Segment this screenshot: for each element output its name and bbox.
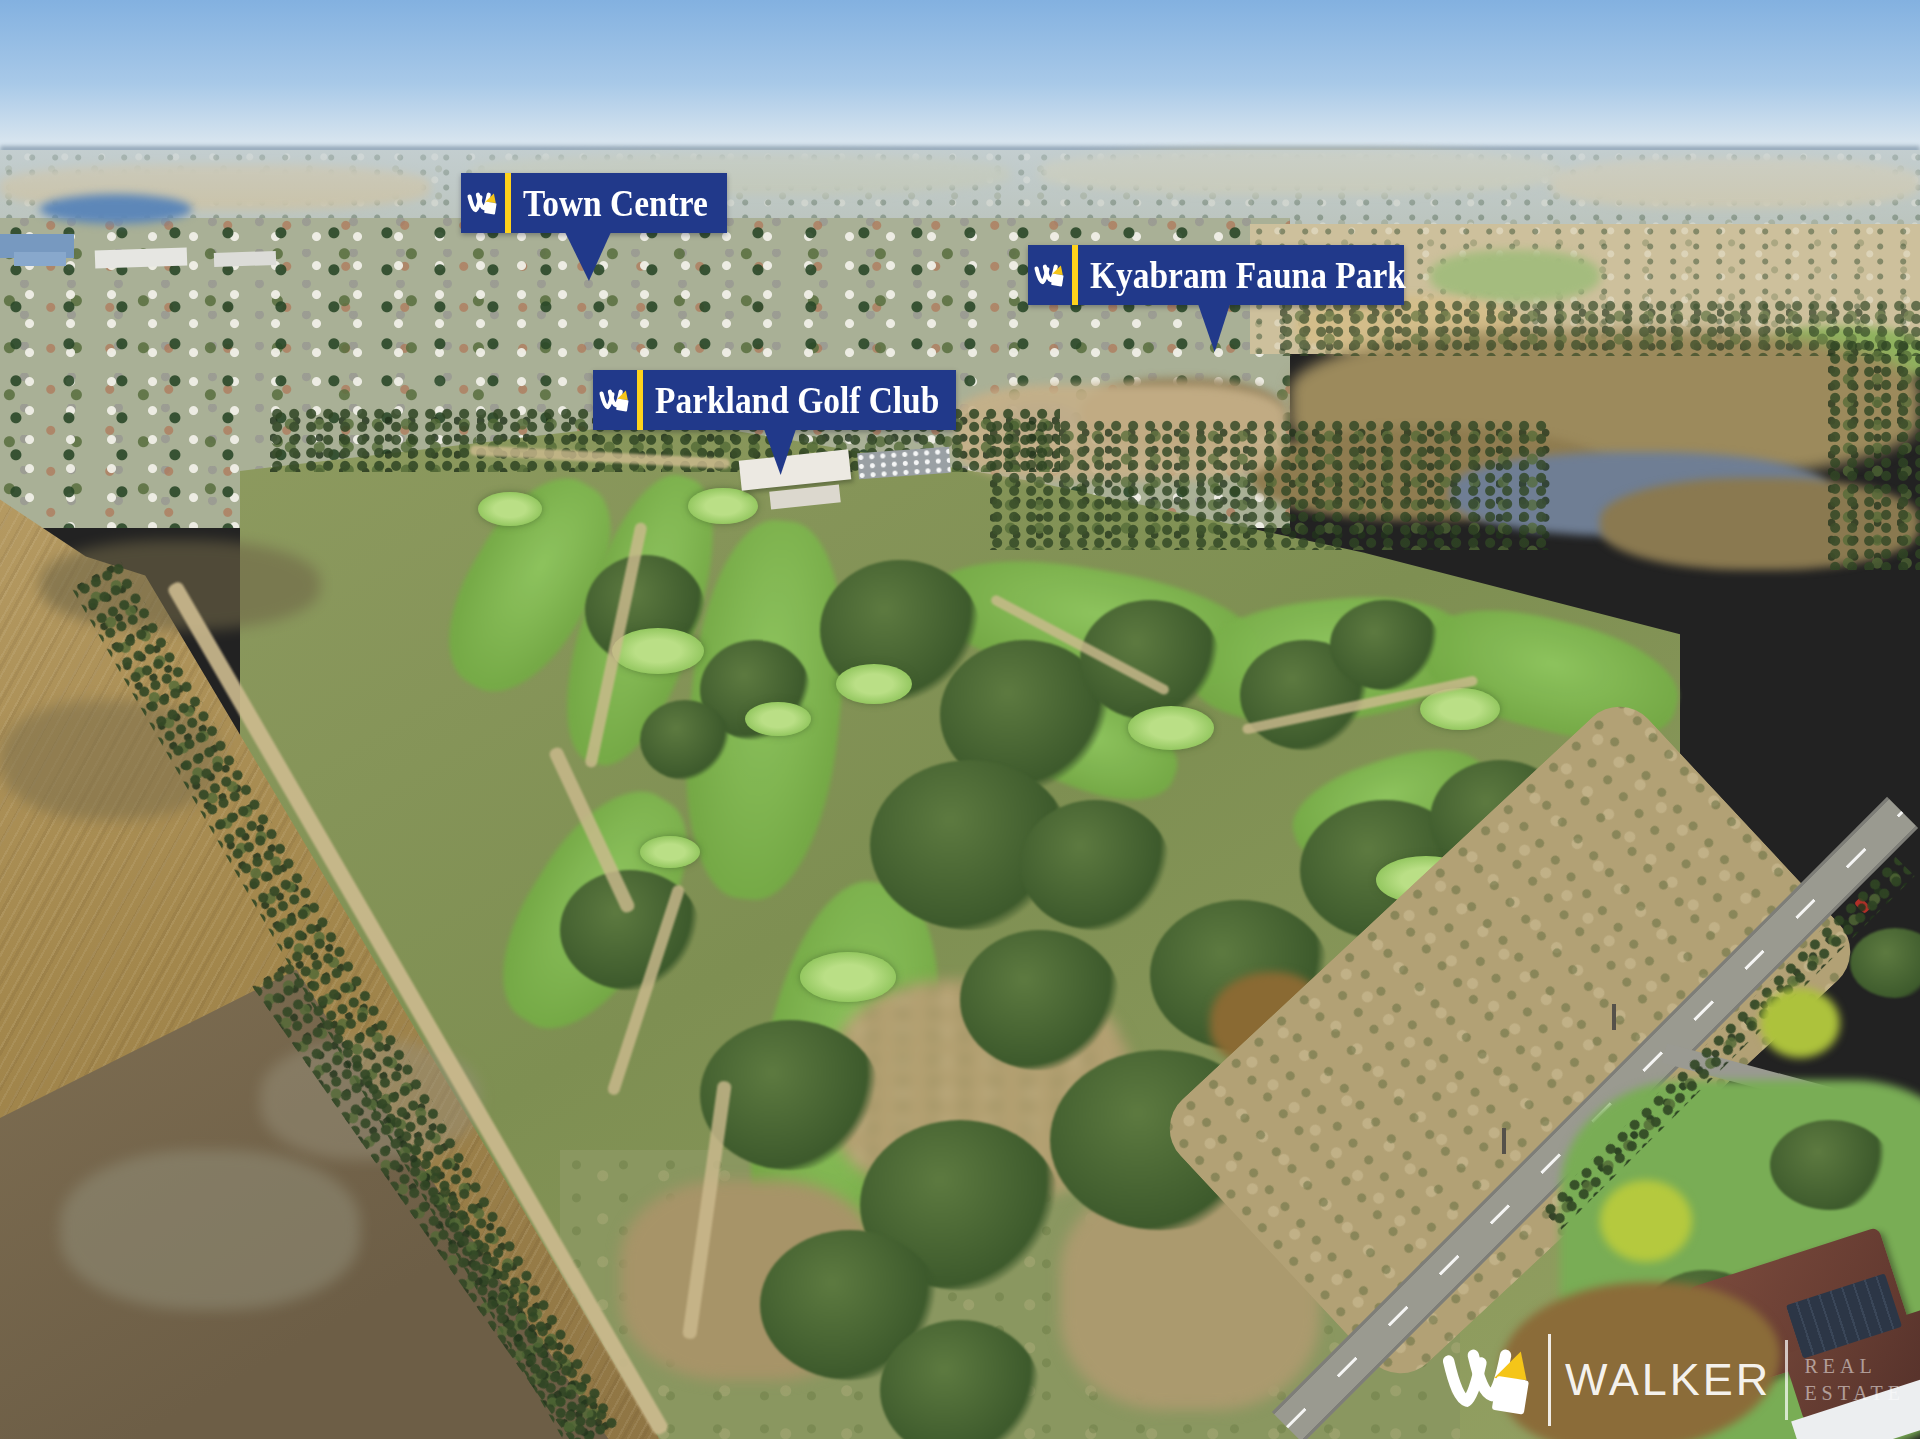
tree-row bbox=[1828, 340, 1920, 570]
label-text: Kyabram Fauna Park bbox=[1090, 253, 1406, 297]
tree-cluster bbox=[640, 700, 730, 780]
walker-logo-icon bbox=[467, 188, 499, 218]
tree-cluster bbox=[1020, 800, 1170, 930]
walker-logo-icon bbox=[1441, 1340, 1536, 1420]
label-accent-bar bbox=[1072, 245, 1078, 305]
label-golf-club: Parkland Golf Club bbox=[593, 370, 956, 430]
tree-cluster bbox=[1330, 600, 1440, 690]
tree-cluster bbox=[960, 930, 1120, 1070]
wetland-trees bbox=[1280, 300, 1920, 356]
yellow-tree bbox=[1600, 1180, 1692, 1262]
golf-green bbox=[640, 836, 700, 868]
label-accent-bar bbox=[637, 370, 643, 430]
label-accent-bar bbox=[505, 173, 511, 233]
walker-logo-icon bbox=[1034, 260, 1066, 290]
watermark-divider bbox=[1785, 1340, 1788, 1420]
label-text: Parkland Golf Club bbox=[655, 378, 939, 422]
golf-green bbox=[836, 664, 912, 704]
label-town-centre: Town Centre bbox=[461, 173, 727, 233]
green-paddock bbox=[1430, 250, 1600, 302]
tree-cluster bbox=[1770, 1120, 1890, 1210]
power-pole bbox=[1612, 1004, 1616, 1030]
division-line: ESTATE bbox=[1804, 1380, 1905, 1407]
golf-green bbox=[1128, 706, 1214, 750]
walker-logo-icon bbox=[599, 385, 631, 415]
golf-green bbox=[612, 628, 704, 674]
brand-division: REAL ESTATE bbox=[1804, 1353, 1905, 1407]
yellow-tree bbox=[1760, 988, 1840, 1058]
label-text: Town Centre bbox=[523, 181, 708, 225]
label-fauna-park: Kyabram Fauna Park bbox=[1028, 245, 1404, 305]
division-line: REAL bbox=[1804, 1353, 1905, 1380]
wetland-trees bbox=[990, 420, 1550, 550]
power-pole bbox=[1502, 1128, 1506, 1154]
watermark-divider bbox=[1548, 1334, 1551, 1426]
dirt-mottle bbox=[60, 1150, 360, 1310]
dam bbox=[40, 194, 192, 224]
golf-green bbox=[478, 492, 542, 526]
brand-name: WALKER bbox=[1565, 1354, 1771, 1406]
agency-watermark: WALKER REAL ESTATE bbox=[1441, 1334, 1905, 1426]
warehouse-roof bbox=[95, 247, 188, 268]
aerial-photo: WALKER REAL ESTATE Town Centre Kyabram bbox=[0, 0, 1920, 1439]
golf-green bbox=[800, 952, 896, 1002]
sky bbox=[0, 0, 1920, 152]
tree-cluster bbox=[1850, 928, 1920, 998]
warehouse-roof bbox=[214, 251, 276, 267]
golf-green bbox=[745, 702, 811, 736]
factory-roof bbox=[14, 252, 66, 266]
golf-green bbox=[688, 488, 758, 524]
